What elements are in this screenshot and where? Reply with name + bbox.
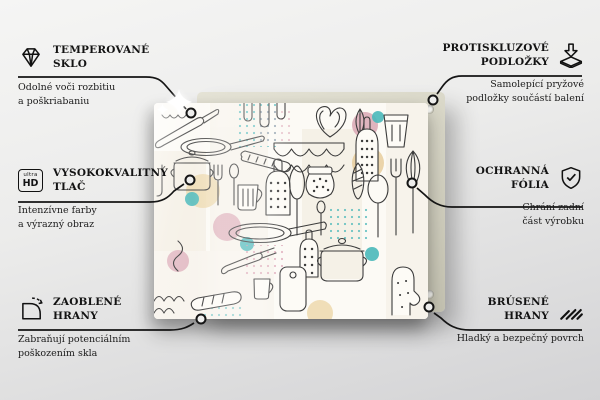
feature-title-line2: TLAČ	[53, 181, 168, 195]
sparkle-highlight	[166, 89, 192, 115]
shield-check-icon	[558, 165, 584, 191]
feature-callout-protective-film: OCHRANNÁ FÓLIA Chrání zadní část výrobku	[422, 165, 584, 228]
feature-desc-line2: a poškriabaniu	[18, 95, 168, 109]
feature-title-line2: HRANY	[488, 310, 549, 324]
feature-title-line2: SKLO	[53, 58, 149, 72]
product-feature-infographic: TEMPEROVANÉ SKLO Odolné voči rozbitiu a …	[0, 0, 600, 400]
feature-description: Odolné voči rozbitiu a poškriabaniu	[18, 81, 168, 108]
feature-title: TEMPEROVANÉ SKLO	[53, 44, 149, 71]
feature-desc-line1: Odolné voči rozbitiu	[18, 81, 168, 95]
feature-callout-tempered-glass: TEMPEROVANÉ SKLO Odolné voči rozbitiu a …	[18, 44, 168, 108]
feature-desc-line1: Intenzívne farby	[18, 204, 168, 218]
feature-title: PROTISKLUZOVÉ PODLOŽKY	[442, 42, 549, 69]
feature-title: ZAOBLENÉ HRANY	[53, 296, 121, 323]
feature-desc-line2: poškozením skla	[18, 347, 168, 361]
feature-description: Intenzívne farby a výrazný obraz	[18, 204, 168, 231]
ultra-hd-icon: ultra HD	[18, 167, 44, 193]
feature-desc-line1: Zabraňují potenciálním	[18, 333, 168, 347]
feature-description: Chrání zadní část výrobku	[422, 201, 584, 228]
feature-desc-line2: podložky součástí balení	[422, 92, 584, 106]
feature-title-line2: HRANY	[53, 310, 121, 324]
feature-title-line1: ZAOBLENÉ	[53, 296, 121, 310]
diamond-icon	[18, 44, 44, 70]
feature-desc-line2: a výrazný obraz	[18, 218, 168, 232]
feature-title-line1: OCHRANNÁ	[476, 165, 549, 179]
feature-description: Zabraňují potenciálním poškozením skla	[18, 333, 168, 360]
feature-desc-line2: část výrobku	[422, 215, 584, 229]
rounded-corner-icon	[18, 296, 44, 322]
feature-title-line1: TEMPEROVANÉ	[53, 44, 149, 58]
feature-title-line1: VYSOKOKVALITNÝ	[53, 167, 168, 181]
feature-title-line2: PODLOŽKY	[442, 56, 549, 70]
feature-title-line2: FÓLIA	[476, 179, 549, 193]
glass-board-product-image	[154, 103, 428, 319]
hatched-edge-icon	[558, 296, 584, 322]
feature-desc-line1: Samolepící pryžové	[422, 78, 584, 92]
feature-desc-line1: Hladký a bezpečný povrch	[422, 332, 584, 346]
feature-description: Hladký a bezpečný povrch	[422, 332, 584, 346]
kitchen-utensils-pattern	[154, 103, 428, 319]
feature-description: Samolepící pryžové podložky součástí bal…	[422, 78, 584, 105]
feature-desc-line1: Chrání zadní	[422, 201, 584, 215]
feature-title: VYSOKOKVALITNÝ TLAČ	[53, 167, 168, 194]
feature-callout-rounded-edges: ZAOBLENÉ HRANY Zabraňují potenciálním po…	[18, 296, 168, 360]
feature-title-line1: PROTISKLUZOVÉ	[442, 42, 549, 56]
feature-callout-high-quality-print: ultra HD VYSOKOKVALITNÝ TLAČ Intenzívne …	[18, 167, 168, 231]
feature-callout-ground-edges: BRÚSENÉ HRANY Hladký a bezpečný povrch	[422, 296, 584, 346]
ultra-hd-icon-text-big: HD	[23, 179, 39, 188]
anti-slip-pad-icon	[558, 42, 584, 68]
feature-title-line1: BRÚSENÉ	[488, 296, 549, 310]
feature-title: BRÚSENÉ HRANY	[488, 296, 549, 323]
feature-callout-anti-slip-pads: PROTISKLUZOVÉ PODLOŽKY Samolepící pryžov…	[422, 42, 584, 105]
feature-title: OCHRANNÁ FÓLIA	[476, 165, 549, 192]
